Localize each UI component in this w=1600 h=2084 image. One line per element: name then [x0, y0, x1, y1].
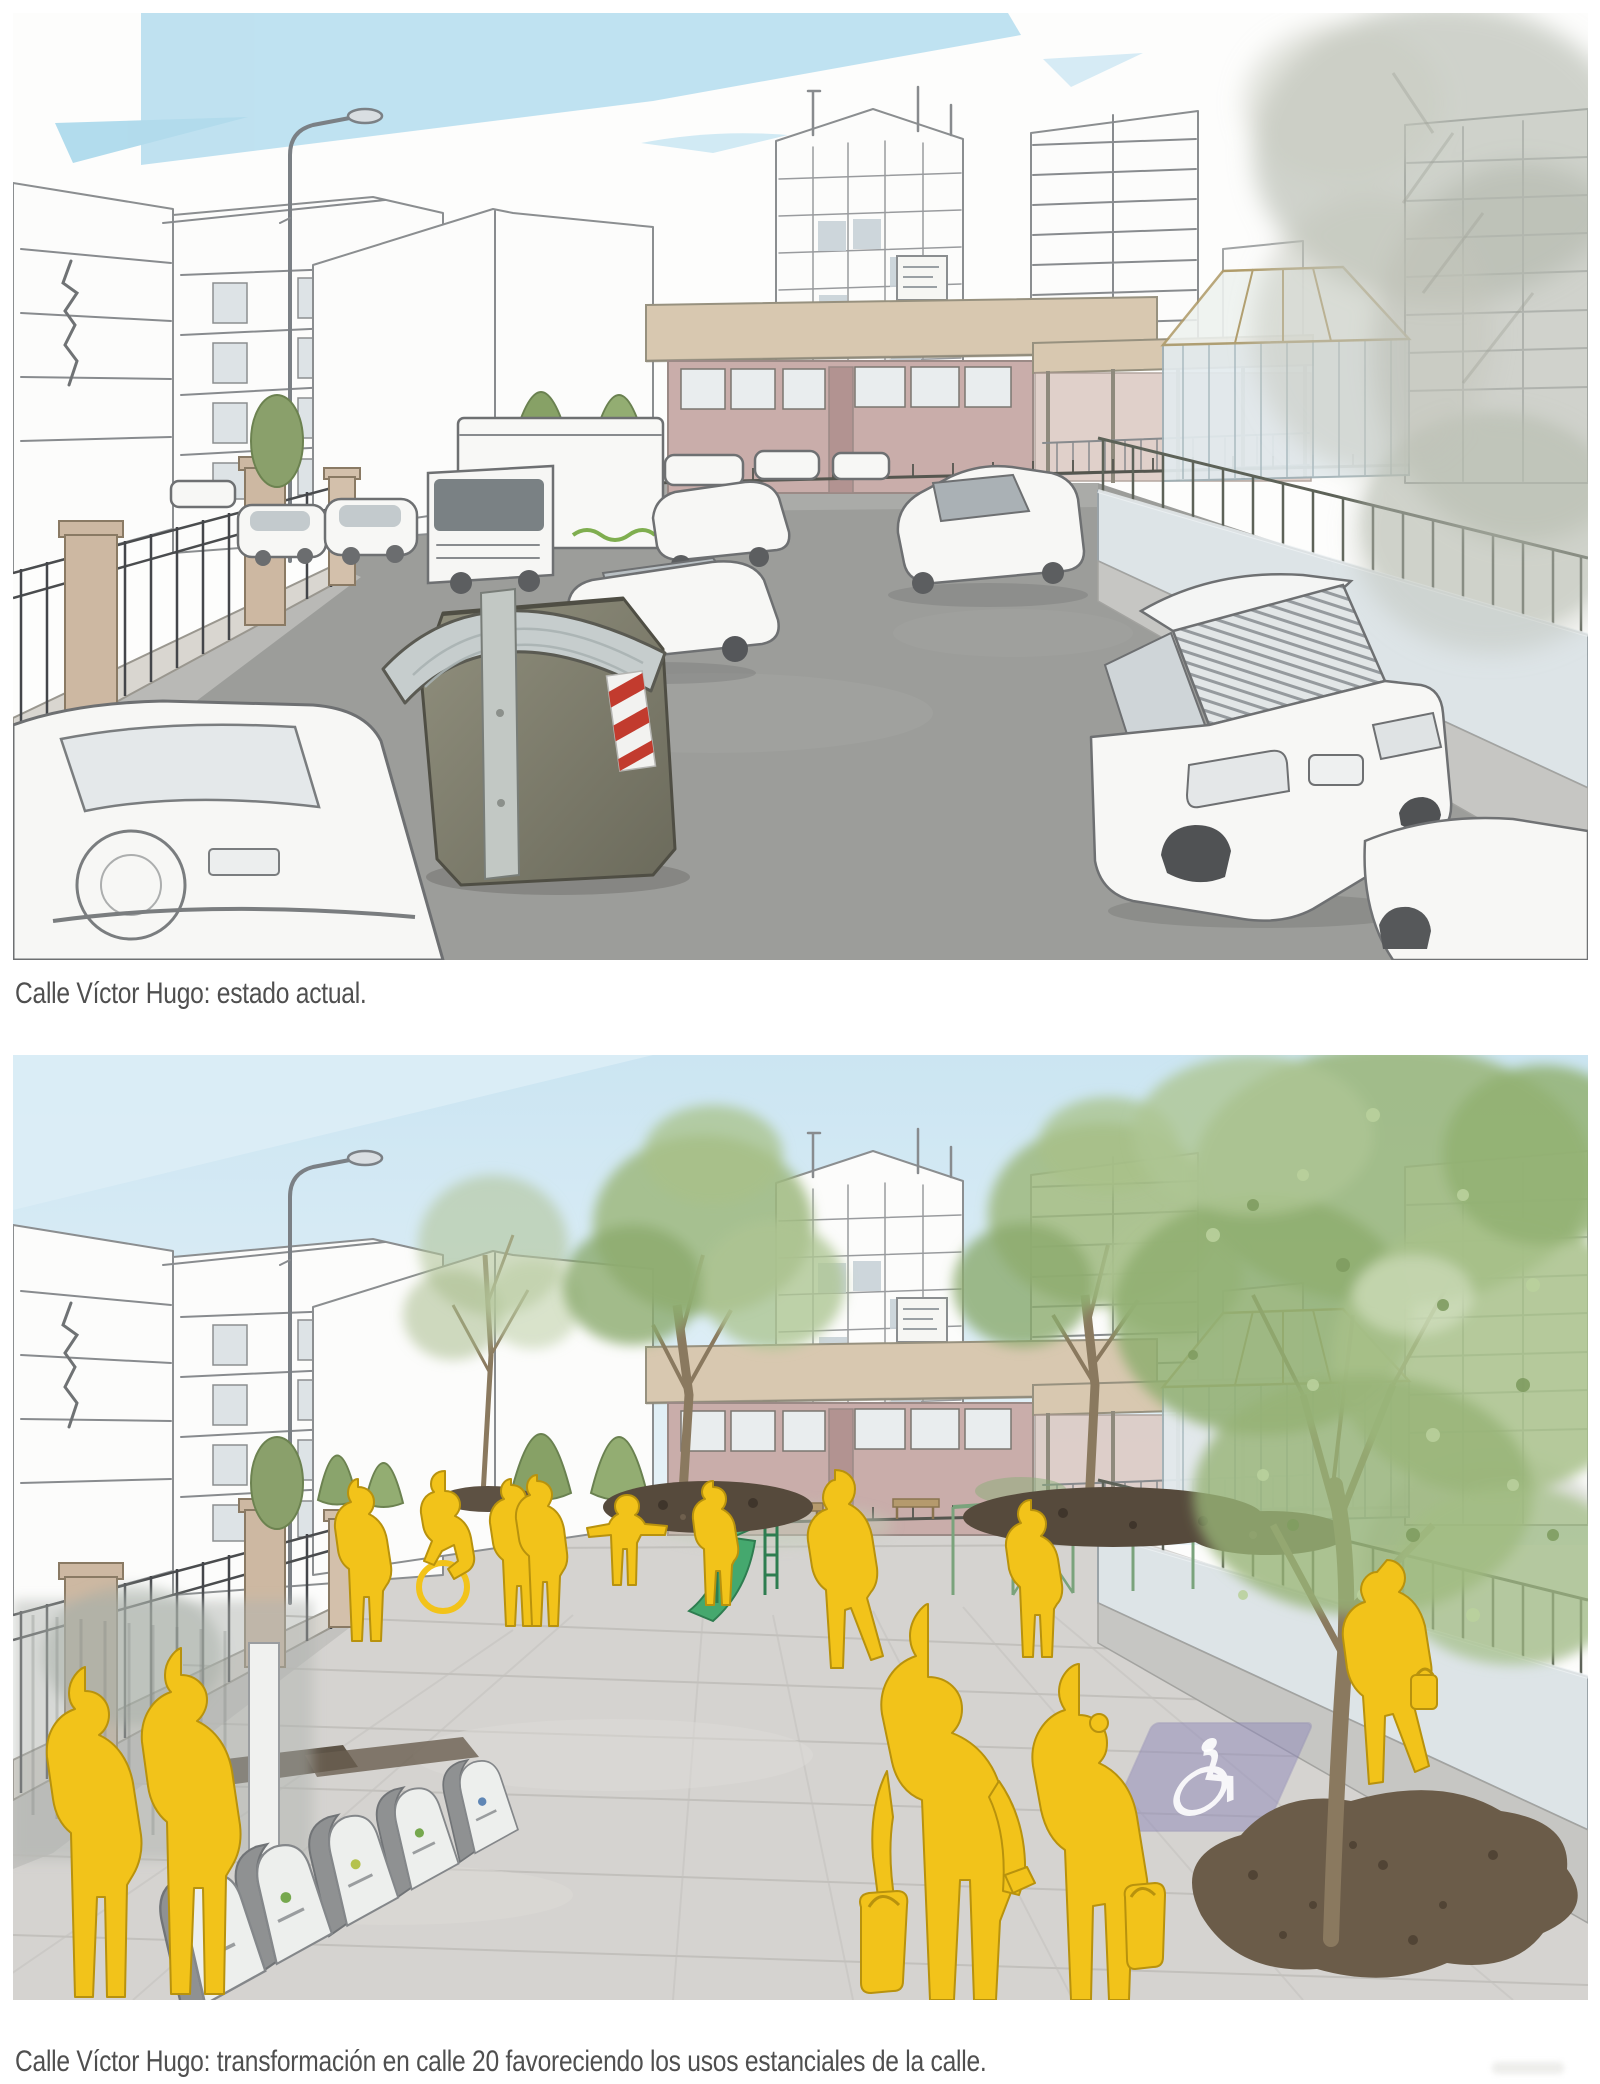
- van-rear: [13, 701, 443, 960]
- figure-before: Calle Víctor Hugo: estado actual.: [13, 13, 1588, 1012]
- document-page: Calle Víctor Hugo: estado actual.: [0, 0, 1600, 2084]
- caption-before: Calle Víctor Hugo: estado actual.: [15, 976, 1588, 1012]
- before-illustration: [13, 13, 1588, 960]
- distant-cars: [665, 451, 889, 485]
- figure-after: Calle Víctor Hugo: transformación en cal…: [13, 1055, 1588, 2080]
- caption-after: Calle Víctor Hugo: transformación en cal…: [15, 2044, 1588, 2080]
- faint-watermark-smudge: [1492, 2062, 1564, 2074]
- after-illustration: [13, 1055, 1588, 2000]
- car-corner: [1365, 818, 1588, 960]
